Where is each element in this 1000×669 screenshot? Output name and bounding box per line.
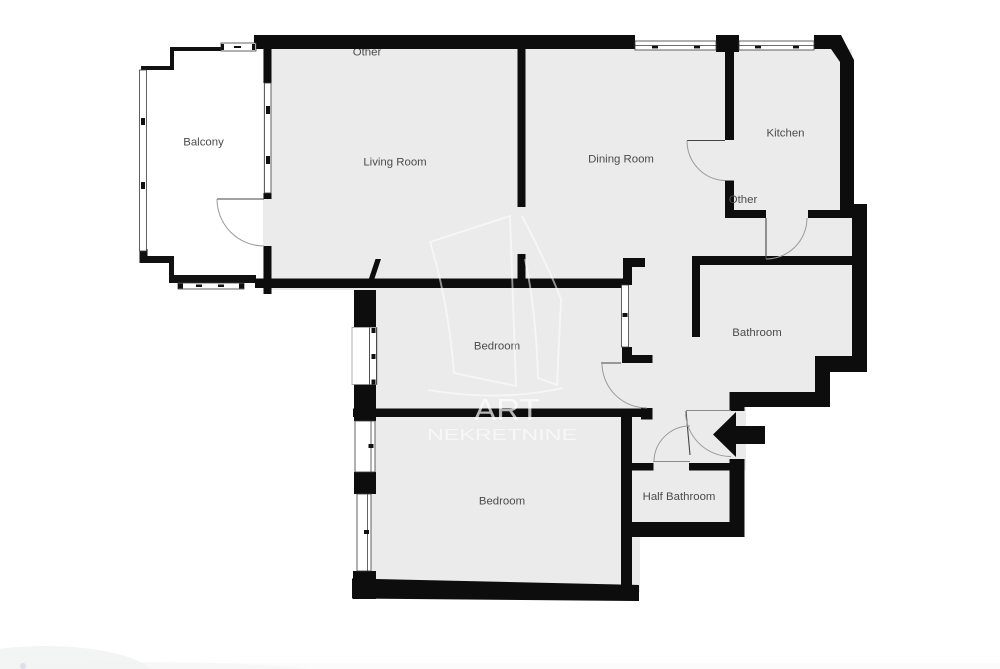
svg-text:NEKRETNINE: NEKRETNINE	[427, 427, 577, 444]
svg-text:Other: Other	[729, 194, 758, 206]
svg-text:ART: ART	[474, 392, 540, 427]
svg-text:Bathroom: Bathroom	[732, 327, 781, 339]
svg-text:Dining Room: Dining Room	[588, 154, 654, 166]
svg-text:Living Room: Living Room	[363, 157, 426, 169]
svg-text:Half Bathroom: Half Bathroom	[643, 491, 716, 503]
svg-text:Kitchen: Kitchen	[767, 128, 805, 140]
svg-text:Balcony: Balcony	[183, 137, 224, 149]
svg-text:Bedroom: Bedroom	[479, 496, 525, 508]
svg-text:Bedroom: Bedroom	[474, 341, 520, 353]
